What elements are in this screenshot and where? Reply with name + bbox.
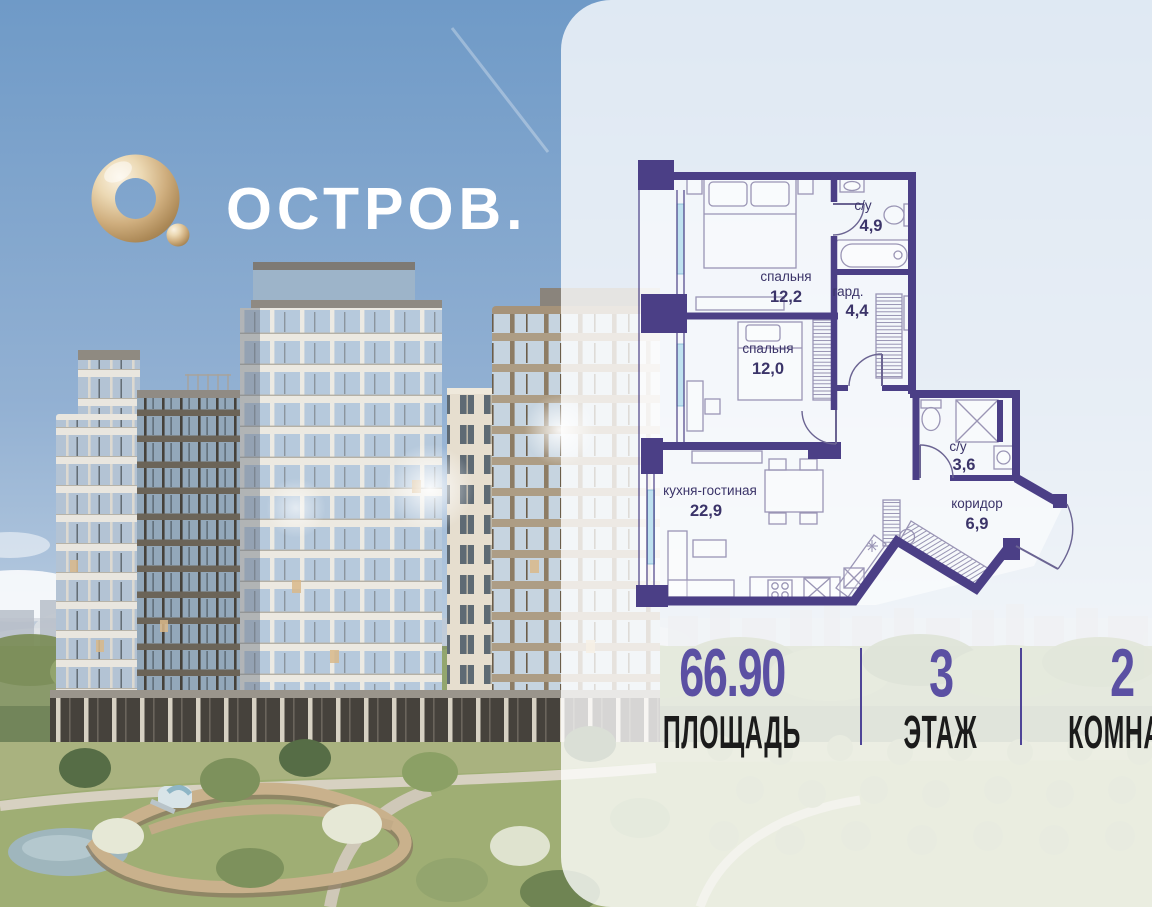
svg-text:с/у: с/у [949,439,967,454]
stat-rooms-value: 2 [1110,645,1134,701]
logo-ring-icon [88,152,200,252]
svg-text:3,6: 3,6 [953,456,976,474]
svg-text:12,2: 12,2 [770,288,802,306]
svg-text:22,9: 22,9 [690,502,722,520]
svg-text:гард.: гард. [833,284,864,299]
stat-area: 66.90 ПЛОЩАДЬ [604,645,860,751]
svg-text:4,9: 4,9 [860,217,883,235]
stats-bar: 66.90 ПЛОЩАДЬ 3 ЭТАЖ 2 КОМНАТ [604,645,1094,751]
stat-rooms: 2 КОМНАТ [1022,645,1152,751]
brand-logo: ОСТРОВ. [88,152,528,252]
stat-floor-value: 3 [929,645,953,701]
floor-plan: спальня 12,2 с/у 4,9 гард. 4,4 спальня 1… [620,148,1120,628]
svg-text:кухня-гостиная: кухня-гостиная [663,483,757,498]
stat-floor: 3 ЭТАЖ [862,645,1020,751]
svg-text:спальня: спальня [742,341,793,356]
svg-text:с/у: с/у [854,198,872,213]
stat-rooms-label: КОМНАТ [1068,713,1152,751]
svg-text:12,0: 12,0 [752,360,784,378]
stat-area-label: ПЛОЩАДЬ [663,713,801,751]
brand-wordmark: ОСТРОВ. [226,175,528,243]
svg-text:6,9: 6,9 [966,515,989,533]
svg-text:спальня: спальня [760,269,811,284]
promo-banner: ОСТРОВ. [0,0,1152,907]
svg-text:4,4: 4,4 [846,302,870,320]
stat-floor-label: ЭТАЖ [904,713,978,751]
stat-area-value: 66.90 [679,645,785,701]
svg-text:коридор: коридор [951,496,1003,511]
